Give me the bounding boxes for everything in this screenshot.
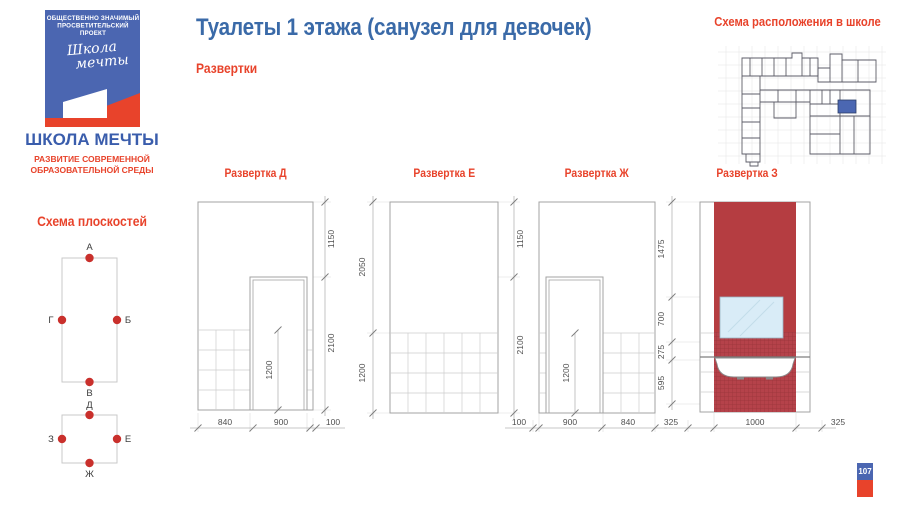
page-number: 107 xyxy=(857,463,873,480)
point-d-dot xyxy=(85,411,93,419)
sink-z xyxy=(715,358,795,377)
door-d xyxy=(250,277,307,410)
brand-subtitle-line2: ОБРАЗОВАТЕЛЬНОЙ СРЕДЫ xyxy=(12,165,172,176)
page-title: Туалеты 1 этажа (санузел для девочек) xyxy=(196,14,656,42)
elevation-zh-title: Развертка Ж xyxy=(539,168,655,184)
point-e-dot xyxy=(113,435,121,443)
dim-zh-bottom-3: 840 xyxy=(621,417,635,427)
point-zh-label: Ж xyxy=(85,469,94,480)
logo-building-graphic xyxy=(45,82,140,127)
brand-name: ШКОЛА МЕЧТЫ xyxy=(12,130,172,150)
dim-z-bottom-3: 325 xyxy=(831,417,845,427)
point-zh-dot xyxy=(85,459,93,467)
point-d-label: Д xyxy=(86,400,93,411)
dim-d-right-2: 2100 xyxy=(326,333,336,352)
mirror-z xyxy=(720,297,783,338)
elevation-d-drawing: 1200 1150 2100 840 900 100 xyxy=(185,192,355,442)
dim-d-bottom-2: 900 xyxy=(274,417,288,427)
point-a-label: А xyxy=(86,242,93,253)
plan-highlighted-room xyxy=(838,100,856,113)
logo-red-band xyxy=(45,118,140,127)
school-floor-plan xyxy=(718,46,886,164)
plane-rect-1 xyxy=(62,258,117,382)
elevation-e-title: Развертка Е xyxy=(390,168,498,184)
point-g-label: Г xyxy=(48,315,53,326)
point-e-label: Е xyxy=(125,434,131,445)
dim-zh-bottom-2: 900 xyxy=(563,417,577,427)
dim-d-right-1: 1150 xyxy=(326,230,336,249)
dim-d-door: 1200 xyxy=(264,360,274,379)
dim-z-bottom-1: 325 xyxy=(664,417,678,427)
dim-z-left-2: 700 xyxy=(656,312,666,326)
logo-tagline-line2: ПРОСВЕТИТЕЛЬСКИЙ ПРОЕКТ xyxy=(46,22,139,37)
brand-subtitle: РАЗВИТИЕ СОВРЕМЕННОЙ ОБРАЗОВАТЕЛЬНОЙ СРЕ… xyxy=(12,154,172,175)
point-z-label: З xyxy=(48,434,54,445)
elevation-z-drawing: 1475 700 275 595 325 1000 325 xyxy=(640,192,865,442)
dim-e-left-2: 1200 xyxy=(357,363,367,382)
elevation-d-title: Развертка Д xyxy=(198,168,313,184)
point-a-dot xyxy=(85,254,93,262)
dim-z-left-4: 595 xyxy=(656,376,666,390)
logo-script-text: Школа мечты xyxy=(44,38,141,74)
brand-subtitle-line1: РАЗВИТИЕ СОВРЕМЕННОЙ xyxy=(12,154,172,165)
page-subtitle: Развертки xyxy=(196,60,267,76)
logo-tagline-line1: ОБЩЕСТВЕННО ЗНАЧИМЫЙ xyxy=(46,15,139,22)
school-map-title: Схема расположения в школе xyxy=(692,15,900,29)
point-g-dot xyxy=(58,316,66,324)
dim-z-bottom-2: 1000 xyxy=(746,417,765,427)
point-b-label: Б xyxy=(125,315,131,326)
elevation-z-title: Развертка З xyxy=(692,168,802,184)
page-number-badge: 107 xyxy=(857,463,873,497)
plane-scheme-diagram: А Б В Г Д Е Ж З xyxy=(20,238,180,488)
logo: ОБЩЕСТВЕННО ЗНАЧИМЫЙ ПРОСВЕТИТЕЛЬСКИЙ ПР… xyxy=(45,10,140,127)
dim-zh-door: 1200 xyxy=(561,363,571,382)
dim-z-left-1: 1475 xyxy=(656,239,666,258)
plane-rect-2 xyxy=(62,415,117,463)
point-b-dot xyxy=(113,316,121,324)
dim-zh-bottom-1: 100 xyxy=(512,417,526,427)
point-v-label: В xyxy=(86,388,92,399)
dim-e-left-1: 2050 xyxy=(357,257,367,276)
point-v-dot xyxy=(85,378,93,386)
door-zh xyxy=(546,277,603,413)
plane-scheme-title: Схема плоскостей xyxy=(8,214,176,229)
point-z-dot xyxy=(58,435,66,443)
slide: ОБЩЕСТВЕННО ЗНАЧИМЫЙ ПРОСВЕТИТЕЛЬСКИЙ ПР… xyxy=(0,0,900,506)
dim-z-left-3: 275 xyxy=(656,345,666,359)
logo-tagline: ОБЩЕСТВЕННО ЗНАЧИМЫЙ ПРОСВЕТИТЕЛЬСКИЙ ПР… xyxy=(46,15,139,37)
page-badge-red-block xyxy=(857,480,873,497)
dim-d-bottom-1: 840 xyxy=(218,417,232,427)
logo-building-icon xyxy=(63,89,107,118)
dim-d-bottom-3: 100 xyxy=(326,417,340,427)
